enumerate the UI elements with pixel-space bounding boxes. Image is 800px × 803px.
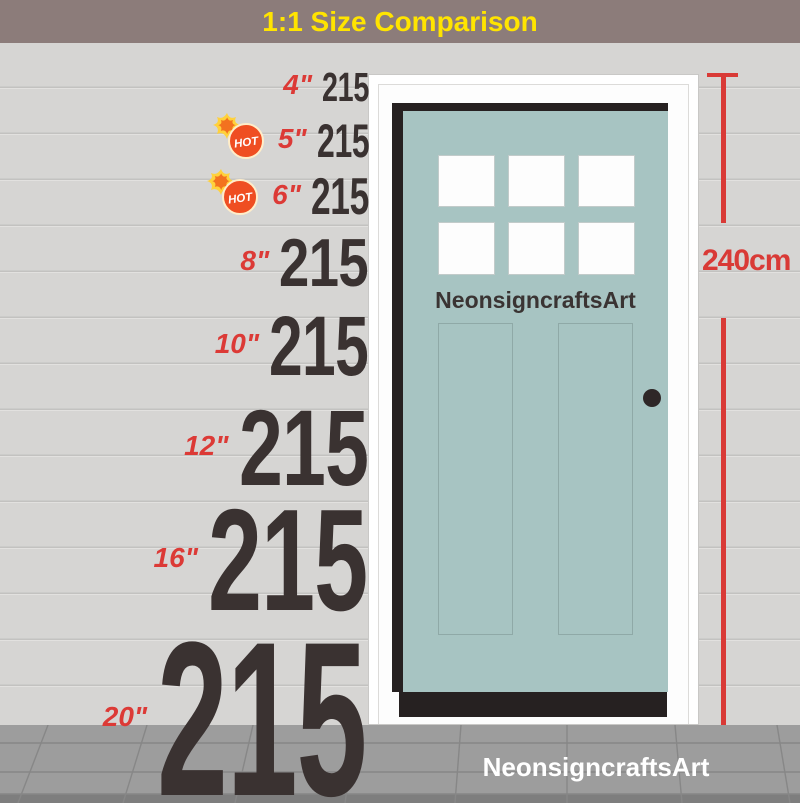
footer-brand-text: NeonsigncraftsArt [483,752,710,783]
size-row: HOT 5" 215 [211,124,370,158]
measure-line-lower [721,318,726,725]
size-label: 12" [184,430,228,462]
size-comparison-poster: 1:1 Size Comparison NeonsigncraftsArt 24… [0,0,800,803]
door-panel-right [558,323,633,635]
hot-flame-icon: HOT [205,169,262,216]
size-number: 215 [279,239,370,288]
size-row: HOT 6" 215 [205,178,370,216]
measure-line-upper [721,75,726,223]
size-row: 4" 215 [283,72,370,102]
size-row: 8" 215 [240,239,370,288]
size-number: 215 [311,178,370,216]
door-panel-left [438,323,513,635]
size-label: 6" [272,179,301,211]
title-bar: 1:1 Size Comparison [0,0,800,43]
size-label: 5" [278,123,307,155]
door-height-label: 240cm [702,246,790,276]
size-row: 10" 215 [215,316,370,377]
page-title: 1:1 Size Comparison [262,6,537,38]
door-window [578,155,635,207]
door-window [578,222,635,275]
size-number: 215 [317,124,370,158]
hot-flame-icon: HOT [211,113,268,160]
size-label: 20" [103,701,147,733]
size-label: 8" [240,245,269,277]
door-knob [643,389,661,407]
door-window [438,155,495,207]
size-row: 20" 215 [103,640,370,799]
size-label: 4" [283,69,312,101]
door-kick-plate [399,692,667,717]
size-label: 16" [154,542,198,574]
door-window [438,222,495,275]
size-row: 12" 215 [184,409,370,487]
door-window [508,155,565,207]
size-number: 215 [157,640,370,799]
size-label: 10" [215,328,259,360]
door-window-grid [438,155,635,275]
size-number: 215 [269,316,370,377]
door-window [508,222,565,275]
size-number: 215 [239,409,371,487]
size-number: 215 [322,72,370,102]
door-brand-text: NeonsigncraftsArt [403,287,668,314]
